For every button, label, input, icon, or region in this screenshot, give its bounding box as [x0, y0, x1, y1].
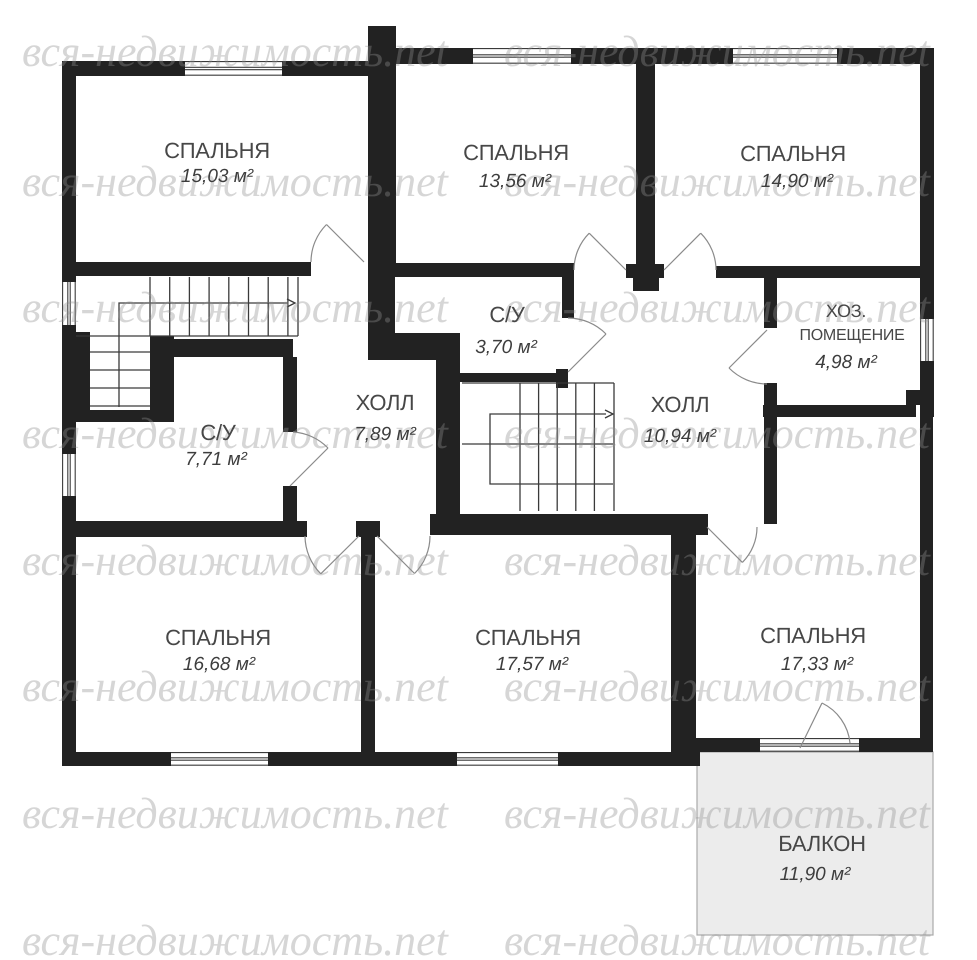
svg-text:вся-недвижимость.net: вся-недвижимость.net: [22, 536, 450, 585]
svg-text:15,03 м²: 15,03 м²: [181, 166, 254, 187]
svg-text:вся-недвижимость.net: вся-недвижимость.net: [22, 789, 450, 838]
svg-text:БАЛКОН: БАЛКОН: [778, 831, 866, 856]
svg-text:17,57 м²: 17,57 м²: [496, 654, 569, 675]
svg-text:14,90 м²: 14,90 м²: [761, 171, 834, 192]
svg-text:вся-недвижимость.net: вся-недвижимость.net: [504, 536, 932, 585]
svg-text:СПАЛЬНЯ: СПАЛЬНЯ: [165, 625, 271, 650]
svg-text:13,56 м²: 13,56 м²: [479, 171, 552, 192]
svg-text:17,33 м²: 17,33 м²: [781, 654, 854, 675]
svg-text:СПАЛЬНЯ: СПАЛЬНЯ: [164, 138, 270, 163]
svg-text:СПАЛЬНЯ: СПАЛЬНЯ: [475, 625, 581, 650]
svg-text:ПОМЕЩЕНИЕ: ПОМЕЩЕНИЕ: [799, 327, 904, 344]
svg-text:СПАЛЬНЯ: СПАЛЬНЯ: [760, 623, 866, 648]
svg-text:11,90 м²: 11,90 м²: [780, 864, 851, 885]
svg-text:вся-недвижимость.net: вся-недвижимость.net: [504, 662, 932, 711]
svg-text:вся-недвижимость.net: вся-недвижимость.net: [504, 789, 932, 838]
svg-text:вся-недвижимость.net: вся-недвижимость.net: [504, 916, 932, 960]
svg-text:7,71 м²: 7,71 м²: [185, 449, 247, 470]
svg-text:вся-недвижимость.net: вся-недвижимость.net: [504, 409, 932, 458]
svg-text:10,94 м²: 10,94 м²: [644, 426, 717, 447]
svg-text:ХОЛЛ: ХОЛЛ: [356, 390, 415, 415]
svg-text:вся-недвижимость.net: вся-недвижимость.net: [504, 27, 932, 76]
svg-text:4,98 м²: 4,98 м²: [815, 352, 877, 373]
svg-text:ХОЗ.: ХОЗ.: [826, 301, 866, 321]
svg-text:3,70 м²: 3,70 м²: [475, 337, 537, 358]
svg-text:16,68 м²: 16,68 м²: [183, 654, 256, 675]
svg-text:С/У: С/У: [200, 420, 237, 445]
svg-text:вся-недвижимость.net: вся-недвижимость.net: [22, 283, 450, 332]
svg-text:вся-недвижимость.net: вся-недвижимость.net: [22, 27, 450, 76]
svg-text:вся-недвижимость.net: вся-недвижимость.net: [22, 916, 450, 960]
svg-text:С/У: С/У: [489, 302, 526, 327]
svg-text:СПАЛЬНЯ: СПАЛЬНЯ: [463, 140, 569, 165]
svg-text:СПАЛЬНЯ: СПАЛЬНЯ: [740, 141, 846, 166]
svg-text:7,89 м²: 7,89 м²: [354, 424, 416, 445]
svg-text:ХОЛЛ: ХОЛЛ: [651, 392, 710, 417]
svg-text:вся-недвижимость.net: вся-недвижимость.net: [504, 283, 932, 332]
